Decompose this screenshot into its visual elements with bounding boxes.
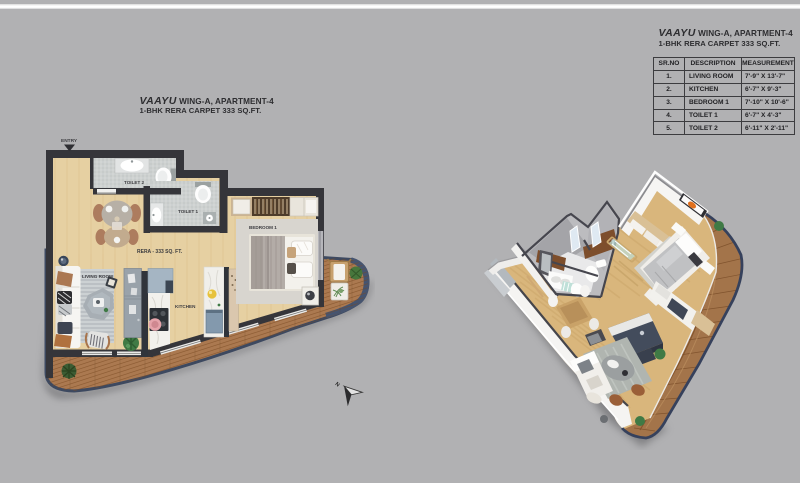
- svg-text:TOILET 2: TOILET 2: [124, 180, 145, 185]
- svg-text:TOILET 1: TOILET 1: [178, 209, 199, 214]
- svg-text:N: N: [334, 381, 341, 388]
- svg-text:ENTRY: ENTRY: [61, 138, 78, 144]
- svg-text:BEDROOM 1: BEDROOM 1: [249, 225, 277, 230]
- svg-text:LIVING ROOM: LIVING ROOM: [82, 274, 113, 279]
- svg-text:KITCHEN: KITCHEN: [175, 304, 196, 309]
- svg-text:RERA - 333 SQ. FT.: RERA - 333 SQ. FT.: [137, 249, 183, 255]
